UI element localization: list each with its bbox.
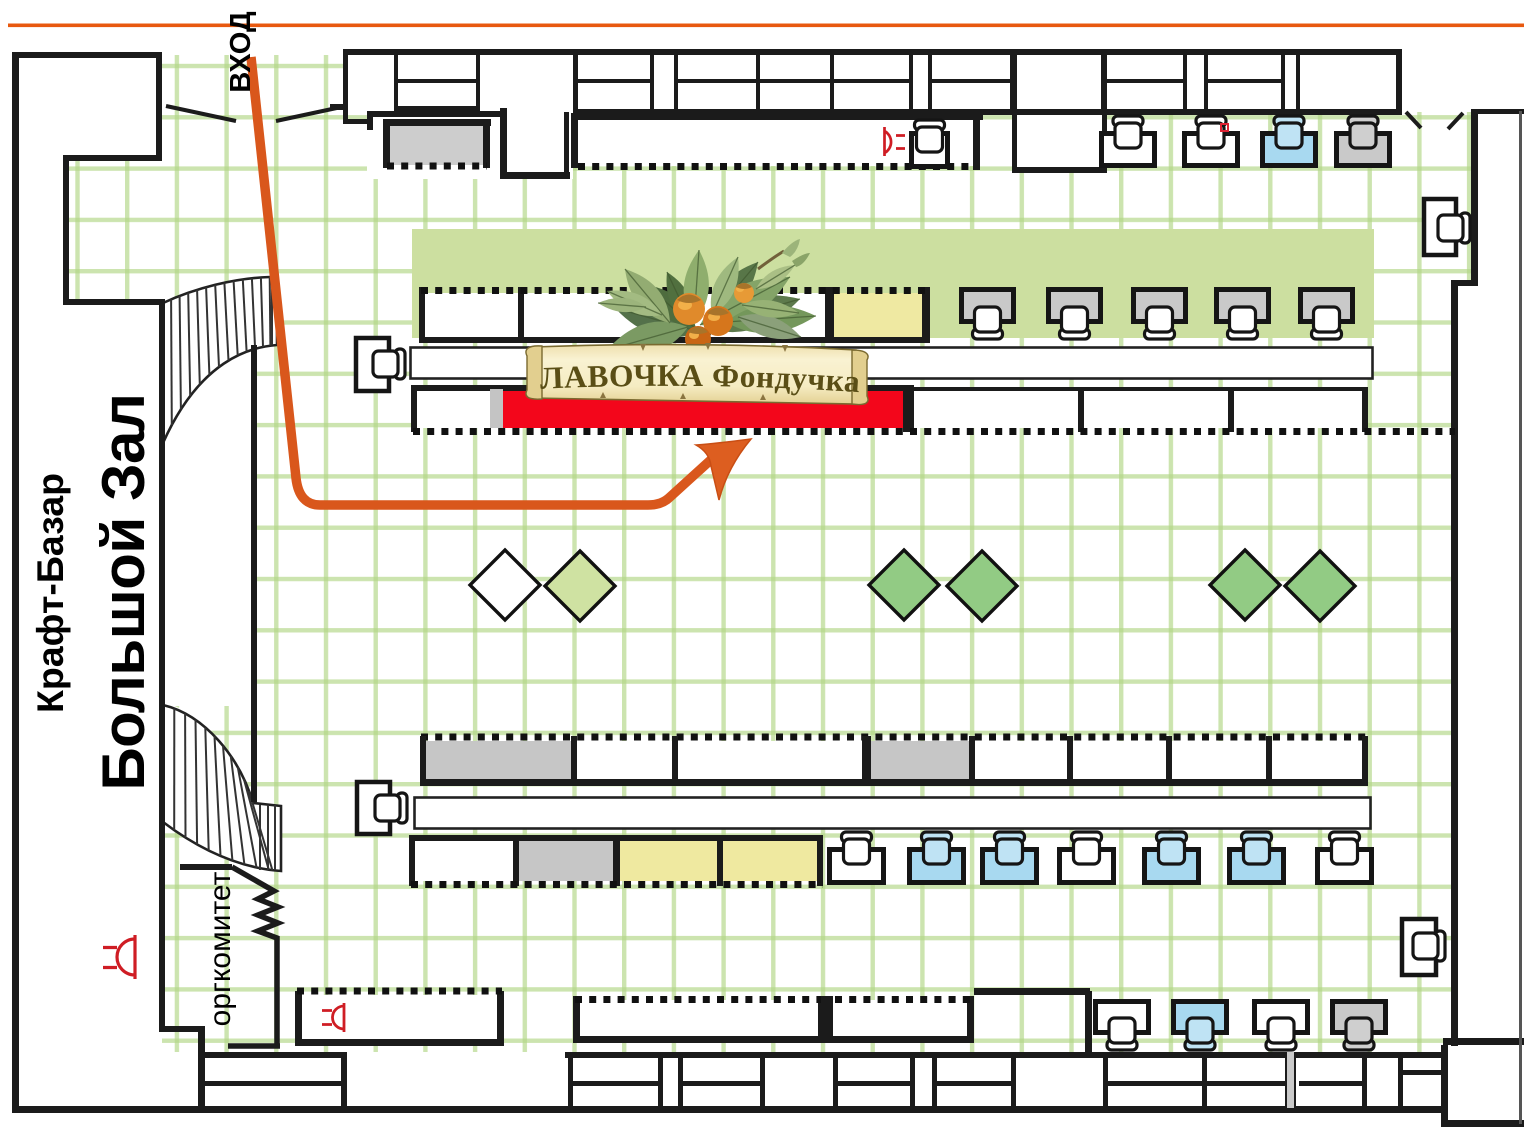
- svg-text:ВХОД: ВХОД: [225, 11, 257, 93]
- svg-text:оргкомитет: оргкомитет: [204, 871, 237, 1026]
- svg-text:Большой Зал: Большой Зал: [90, 393, 157, 790]
- svg-text:Крафт-Базар: Крафт-Базар: [29, 473, 71, 713]
